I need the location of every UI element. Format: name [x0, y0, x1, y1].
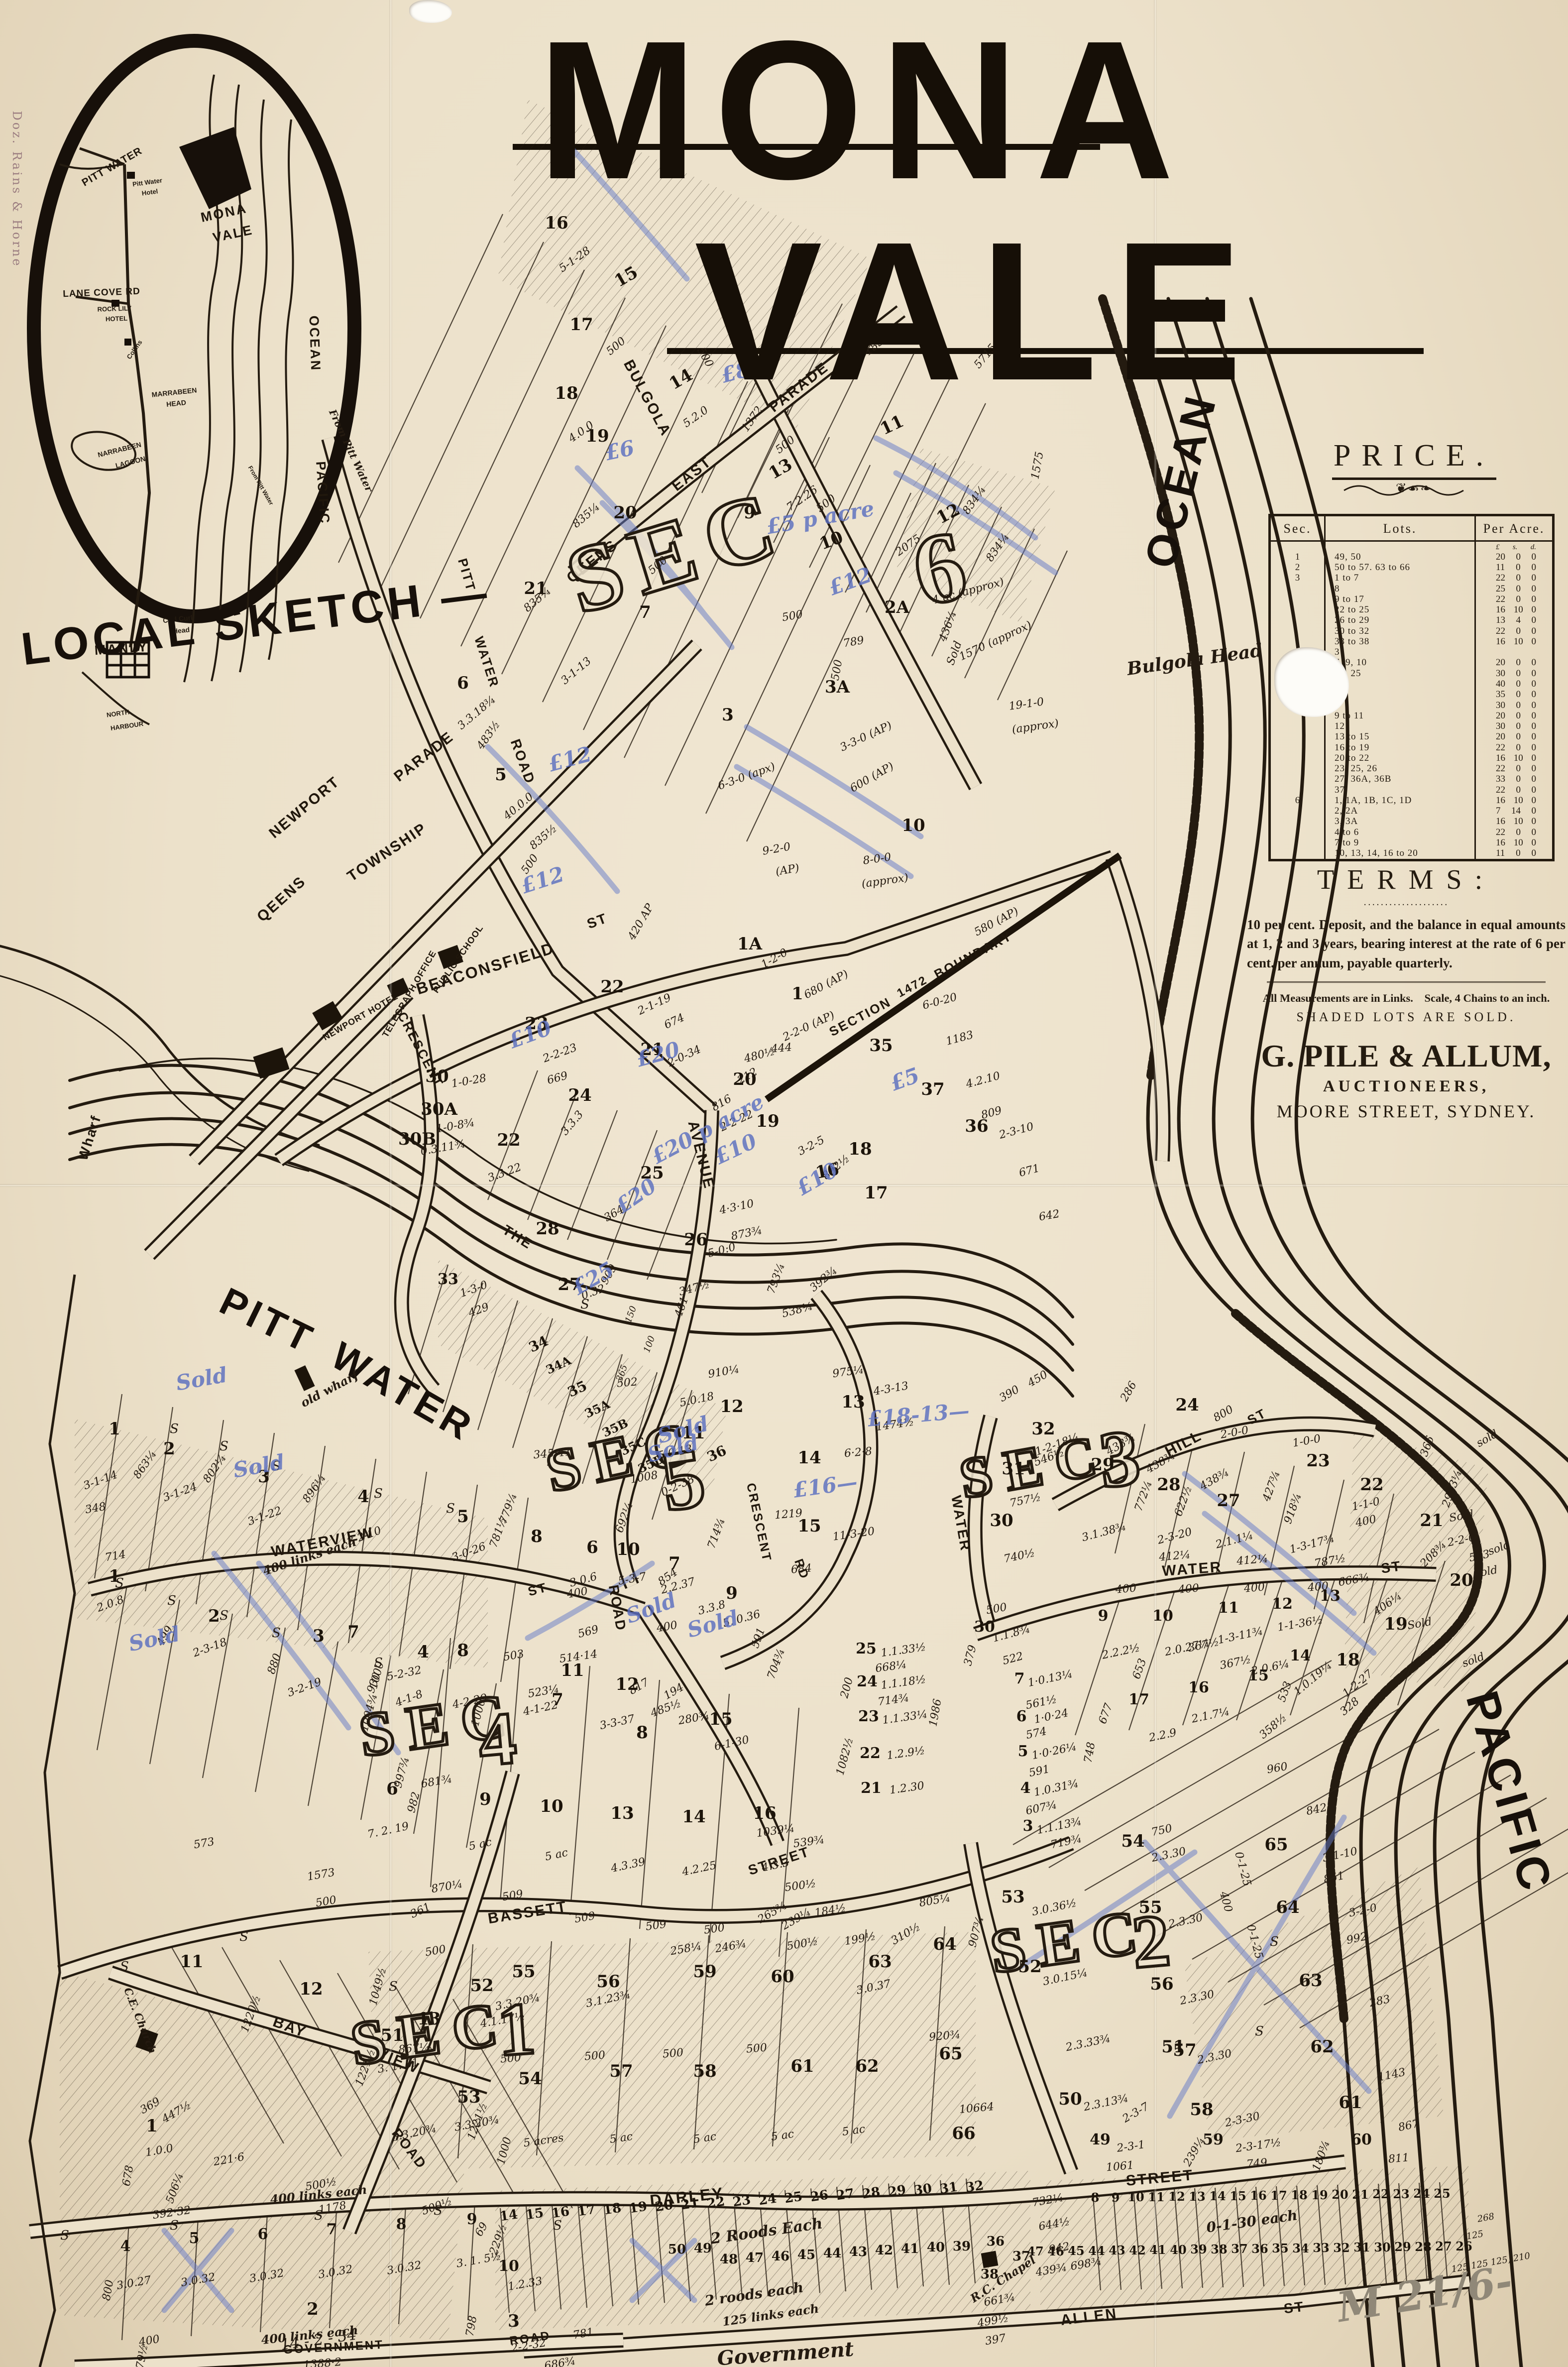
map-annotation: 5	[189, 2231, 200, 2246]
map-annotation: 9	[479, 1791, 491, 1808]
map-annotation: 60	[1351, 2132, 1372, 2147]
map-annotation: 920¾	[928, 2029, 961, 2043]
map-annotation: 22	[1360, 1476, 1383, 1493]
map-annotation: 26	[684, 1231, 707, 1248]
map-annotation: 24	[568, 1087, 591, 1104]
price-row: 2, 2A7140	[1270, 806, 1554, 816]
map-annotation: 7	[1014, 1671, 1025, 1686]
map-annotation: 17	[569, 316, 593, 333]
map-annotation: 58	[693, 2063, 716, 2080]
map-annotation: 500	[703, 1922, 726, 1936]
map-annotation: 54	[518, 2070, 542, 2087]
map-annotation: 17	[576, 2203, 596, 2219]
map-annotation: 38	[1211, 2244, 1227, 2255]
map-annotation: 28	[861, 2186, 881, 2201]
map-annotation: 7	[639, 604, 651, 621]
map-annotation: 19	[628, 2200, 648, 2216]
price-col-peracre: Per Acre.	[1475, 515, 1554, 541]
map-annotation: 29	[887, 2184, 906, 2199]
map-annotation: 23	[1393, 2188, 1409, 2200]
price-row: 33 to 3816100	[1270, 636, 1554, 647]
map-annotation: 28	[1415, 2241, 1431, 2253]
map-annotation: 35	[869, 1037, 893, 1054]
map-annotation: 32	[965, 2179, 984, 2195]
map-annotation: 22	[600, 978, 624, 995]
map-annotation: 2A	[885, 599, 909, 616]
map-annotation: S	[272, 1627, 281, 1640]
map-annotation: 9	[726, 1585, 738, 1602]
map-annotation: 5	[1018, 1744, 1028, 1759]
map-annotation: 18	[848, 1141, 872, 1158]
map-annotation: 21	[861, 1781, 882, 1796]
map-annotation: 6	[258, 2227, 268, 2242]
map-annotation: S	[170, 1422, 179, 1435]
map-annotation: 9	[1112, 2192, 1120, 2204]
price-row: 4 to 62200	[1270, 827, 1554, 837]
map-annotation: 62	[855, 2058, 879, 2075]
map-annotation: 6	[457, 675, 469, 692]
paper-tear	[409, 0, 452, 23]
price-row: 9 to 172200	[1270, 594, 1554, 604]
price-row: 30 to 322200	[1270, 626, 1554, 636]
map-annotation: 56	[596, 1973, 620, 1990]
map-annotation: 27	[835, 2187, 855, 2203]
map-annotation: 32	[1333, 2242, 1349, 2254]
map-annotation: 58	[1190, 2101, 1213, 2118]
map-annotation: 4	[120, 2239, 131, 2254]
map-annotation: 42	[875, 2244, 893, 2257]
terms-divider	[1267, 981, 1546, 983]
map-annotation: 43	[1109, 2245, 1125, 2256]
map-annotation: 400	[1307, 1581, 1329, 1594]
map-annotation: 20	[613, 504, 637, 521]
map-annotation: 61	[1339, 2094, 1362, 2111]
map-annotation: 64	[1276, 1899, 1299, 1916]
map-annotation: S	[434, 2204, 443, 2217]
map-annotation: 9	[744, 504, 756, 521]
map-annotation: 7	[347, 1624, 359, 1641]
price-row: 7 to 916100	[1270, 837, 1554, 848]
map-annotation: 24	[1175, 1397, 1199, 1414]
map-annotation: 24	[857, 1674, 878, 1689]
map-annotation: 4	[417, 1644, 429, 1660]
map-annotation: 35	[1272, 2243, 1288, 2254]
map-annotation: 36	[987, 2235, 1005, 2248]
price-row: 16 to 192200	[1270, 742, 1554, 753]
map-annotation: S	[374, 1487, 383, 1500]
map-annotation: 18	[1336, 1652, 1359, 1668]
map-annotation: 2	[163, 1440, 175, 1457]
map-annotation: 14	[499, 2208, 518, 2224]
map-annotation: 39	[1190, 2244, 1207, 2255]
map-annotation: 43	[849, 2246, 867, 2258]
poster-title-line1: MONA	[538, 21, 1191, 199]
auctioneer-address: MOORE STREET, SYDNEY.	[1247, 1101, 1566, 1122]
map-annotation: 13	[417, 2011, 441, 2027]
map-annotation: 684	[790, 1563, 812, 1576]
map-annotation: S	[1255, 2025, 1264, 2038]
map-annotation: 12	[1272, 1597, 1293, 1612]
map-annotation: 30	[913, 2182, 932, 2198]
price-currency-row: £s.d.	[1270, 541, 1554, 552]
map-annotation: 50	[1058, 2091, 1082, 2108]
map-annotation: 400	[1243, 1582, 1265, 1595]
map-annotation: S	[170, 2219, 179, 2232]
map-annotation: S	[167, 1594, 176, 1607]
map-annotation: 10	[1152, 1609, 1173, 1624]
map-annotation: 15	[709, 1711, 732, 1728]
map-annotation: 27	[1217, 1492, 1240, 1509]
map-annotation: 50	[668, 2243, 686, 2256]
map-annotation: 31	[1002, 1460, 1025, 1477]
map-annotation: 22	[706, 2195, 725, 2211]
map-annotation: 30	[990, 1512, 1013, 1529]
map-annotation: 52	[470, 1977, 493, 1994]
map-annotation: 33	[438, 1272, 458, 1287]
map-annotation: 509	[645, 1919, 668, 1933]
auction-poster: BULGOLAEASTPARADEQEENSPARADENEWPORTQEENS…	[0, 0, 1568, 2367]
poster-title-line2: VALE	[694, 223, 1259, 400]
map-annotation: 65	[939, 2045, 962, 2062]
map-annotation: S	[389, 1980, 398, 1993]
map-annotation: 31	[939, 2181, 958, 2196]
price-row: 13 to 152000	[1270, 731, 1554, 742]
map-annotation: 41	[1149, 2244, 1166, 2256]
map-annotation: S	[220, 1440, 228, 1453]
map-annotation: 33	[1313, 2242, 1329, 2254]
map-annotation: 64	[933, 1936, 956, 1953]
map-annotation: 9	[1098, 1609, 1109, 1624]
map-annotation: 11	[1218, 1601, 1239, 1616]
map-annotation: 36	[965, 1118, 988, 1135]
map-annotation: 63	[1299, 1972, 1322, 1989]
map-annotation: 16	[1250, 2190, 1266, 2202]
price-row: 23, 25, 262200	[1270, 763, 1554, 774]
map-annotation: 23	[858, 1709, 879, 1724]
map-annotation: 17	[864, 1184, 888, 1201]
map-annotation: S	[553, 2219, 562, 2232]
map-annotation: 749	[1246, 2157, 1268, 2170]
map-annotation: 1	[791, 985, 803, 1002]
street-label: OCEAN	[307, 315, 323, 371]
map-annotation: 38	[981, 2268, 999, 2281]
map-annotation: 1061	[1106, 2160, 1134, 2174]
price-row: 26 to 291340	[1270, 615, 1554, 625]
map-annotation: 20	[654, 2199, 673, 2214]
map-annotation: 13	[841, 1394, 865, 1411]
price-row: 31 to 72200	[1270, 573, 1554, 583]
map-annotation: S	[60, 2229, 69, 2242]
price-row: 123000	[1270, 721, 1554, 731]
map-annotation: 60	[771, 1968, 794, 1985]
map-annotation: 20	[1332, 2189, 1348, 2201]
map-annotation: 6	[586, 1539, 598, 1556]
sold-lot-hatching	[60, 100, 1488, 2340]
map-annotation: ROCK LILY	[97, 305, 131, 312]
map-annotation: 22	[860, 1746, 881, 1761]
terms-dots: ....................	[1247, 897, 1566, 908]
map-annotation: 37	[1231, 2243, 1247, 2255]
map-annotation: 12	[299, 1981, 323, 1998]
map-annotation: 55	[512, 1963, 535, 1980]
map-annotation: 39	[953, 2240, 971, 2253]
map-annotation: 13	[1189, 2191, 1205, 2203]
terms-heading: TERMS:	[1247, 864, 1566, 896]
price-col-lots: Lots.	[1325, 515, 1475, 541]
map-annotation: 18	[602, 2202, 622, 2217]
map-annotation: 40	[1170, 2244, 1186, 2256]
terms-links-note: All Measurements are in Links.	[1263, 992, 1413, 1004]
map-annotation: 4	[1020, 1781, 1031, 1796]
map-annotation: S	[120, 1960, 129, 1973]
map-annotation: 20	[733, 1071, 756, 1088]
map-annotation: 49	[1090, 2132, 1111, 2147]
map-annotation: 15	[1230, 2190, 1246, 2202]
map-annotation: 10664	[959, 2102, 995, 2116]
blue-price-annotation: £6	[603, 437, 636, 464]
map-annotation: 40	[927, 2241, 945, 2254]
map-annotation: 867¼	[398, 2042, 430, 2055]
map-annotation: 18	[1291, 2189, 1307, 2201]
terms-panel: TERMS: .................... 10 per cent.…	[1247, 864, 1566, 1122]
street-label: ST	[1380, 1559, 1402, 1576]
map-annotation: 20	[1450, 1572, 1473, 1589]
map-annotation: 14	[1290, 1649, 1311, 1663]
map-annotation: S	[446, 1502, 455, 1515]
map-annotation: 14	[797, 1449, 821, 1466]
price-row: 372200	[1270, 785, 1554, 795]
terms-shaded-note: SHADED LOTS ARE SOLD.	[1247, 1010, 1566, 1025]
map-annotation: 16	[753, 1805, 776, 1822]
map-annotation: 47	[746, 2251, 764, 2264]
map-annotation: 10	[901, 817, 925, 834]
map-annotation: 30A	[421, 1101, 457, 1118]
map-annotation: 37	[1012, 2250, 1030, 2263]
map-annotation: 46	[772, 2250, 789, 2263]
map-annotation: S	[1270, 1935, 1279, 1948]
map-annotation: 45	[797, 2249, 815, 2261]
price-row: 3, 3A16100	[1270, 816, 1554, 827]
map-annotation: 4	[357, 1488, 369, 1505]
map-annotation: 7	[669, 1555, 680, 1572]
auctioneer-role: AUCTIONEERS,	[1247, 1077, 1566, 1096]
map-annotation: 6·2·8	[844, 1446, 873, 1460]
map-annotation: 34	[1292, 2243, 1309, 2254]
map-annotation: 400	[1115, 1583, 1137, 1596]
map-annotation: 36	[1251, 2243, 1268, 2255]
map-annotation: 15	[797, 1518, 821, 1535]
map-annotation: 8	[396, 2217, 407, 2232]
map-annotation: 3	[1023, 1819, 1033, 1834]
price-row: 27, 36A, 36B3300	[1270, 774, 1554, 784]
map-annotation: 27	[1435, 2241, 1452, 2252]
map-annotation: 41	[901, 2243, 919, 2255]
map-annotation: 23	[1306, 1452, 1330, 1469]
map-annotation: S	[220, 1609, 228, 1622]
map-annotation: 57	[609, 2063, 633, 2080]
map-annotation: 1	[146, 2118, 158, 2134]
map-annotation: 63	[868, 1953, 892, 1970]
price-row: 82500	[1270, 584, 1554, 594]
map-annotation: 44	[1088, 2245, 1105, 2257]
printer-stamp: Doz. Rains & Horne	[11, 111, 23, 267]
map-annotation: 21	[1352, 2189, 1368, 2201]
map-annotation: HOTEL	[106, 315, 127, 323]
map-annotation: 25	[856, 1642, 877, 1657]
map-annotation: 26	[809, 2189, 829, 2204]
map-annotation: 2	[208, 1608, 220, 1625]
map-annotation: 3A	[825, 679, 850, 696]
map-annotation: 59	[693, 1963, 716, 1980]
map-annotation: 14	[682, 1808, 705, 1825]
map-annotation: 11	[180, 1953, 203, 1970]
map-annotation: 8	[457, 1642, 469, 1659]
map-annotation: 17	[1270, 2190, 1287, 2202]
map-annotation: 30	[1374, 2242, 1390, 2253]
map-annotation: 66	[952, 2125, 975, 2142]
map-annotation: 400	[1178, 1583, 1200, 1596]
map-annotation: 12	[720, 1398, 743, 1415]
map-annotation: 37	[921, 1081, 944, 1098]
map-annotation: 25	[1434, 2188, 1450, 2200]
map-annotation: S	[580, 1298, 589, 1311]
map-annotation: 8	[1091, 2192, 1100, 2204]
map-annotation: 500	[662, 2047, 684, 2060]
price-title: PRICE.	[1332, 438, 1496, 480]
map-annotation: 3	[313, 1628, 325, 1645]
map-annotation: 1388·2	[303, 2357, 342, 2367]
price-col-sec: Sec.	[1270, 515, 1325, 541]
map-annotation: S	[314, 2209, 323, 2222]
map-annotation: 10	[1127, 2191, 1144, 2203]
map-annotation: 26	[1456, 2241, 1472, 2252]
map-annotation: 49	[694, 2242, 712, 2255]
map-annotation: 51	[380, 2027, 404, 2044]
price-row: 250 to 57. 63 to 661100	[1270, 562, 1554, 573]
map-annotation: 61	[790, 2058, 814, 2075]
map-annotation: 32	[1031, 1420, 1055, 1437]
price-row: 149, 502000	[1270, 552, 1554, 562]
price-row: 22 to 2516100	[1270, 604, 1554, 615]
map-annotation: 31	[1353, 2242, 1370, 2253]
map-annotation: 1	[109, 1420, 120, 1437]
map-annotation: 21	[680, 2197, 699, 2212]
map-annotation: 8	[531, 1528, 543, 1545]
map-annotation: 23	[732, 2194, 751, 2209]
map-annotation: 30	[425, 1068, 448, 1085]
map-annotation: 500	[500, 2052, 522, 2065]
map-annotation: 24	[1413, 2188, 1430, 2200]
map-annotation: 28	[1157, 1476, 1180, 1493]
map-annotation: 42	[1129, 2245, 1145, 2256]
map-annotation: 55	[1138, 1899, 1162, 1916]
price-squiggle: ❦☙❧	[1268, 481, 1560, 496]
map-annotation: 65	[1264, 1836, 1288, 1853]
map-annotation: 48	[720, 2253, 738, 2266]
map-annotation: 8	[636, 1724, 648, 1741]
map-annotation: 5	[495, 766, 507, 783]
map-annotation: 6	[1016, 1709, 1027, 1724]
map-annotation: 5	[457, 1508, 469, 1525]
map-annotation: 25	[784, 2190, 803, 2206]
map-annotation: 3	[508, 2313, 520, 2330]
map-annotation: 10	[616, 1541, 640, 1558]
map-annotation: 57	[1173, 2042, 1196, 2059]
map-annotation: 19	[1311, 2189, 1328, 2201]
map-annotation: 28	[536, 1220, 559, 1237]
map-annotation: 9	[467, 2212, 477, 2227]
map-annotation: 811	[1388, 2152, 1410, 2165]
map-annotation: 18	[555, 385, 578, 402]
map-annotation: 11	[560, 1662, 584, 1679]
map-annotation: 62	[1310, 2038, 1334, 2055]
terms-body: 10 per cent. Deposit, and the balance in…	[1247, 915, 1566, 972]
price-row: 10, 13, 14, 16 to 201100	[1270, 848, 1554, 860]
terms-scale-note: Scale, 4 Chains to an inch.	[1424, 992, 1550, 1004]
map-annotation: 10	[540, 1798, 563, 1815]
map-annotation: S	[239, 1930, 248, 1943]
map-annotation: 22	[497, 1132, 520, 1149]
map-annotation: 13	[610, 1805, 634, 1822]
map-annotation: 412¼	[1158, 1549, 1191, 1563]
map-annotation: 3	[722, 707, 734, 723]
map-annotation: S	[374, 1657, 383, 1669]
terms-measurements: All Measurements are in Links. Scale, 4 …	[1247, 992, 1566, 1005]
map-annotation: S	[115, 1577, 124, 1590]
map-annotation: 44	[823, 2247, 841, 2260]
map-annotation: 7	[327, 2222, 337, 2237]
map-annotation: 16	[1188, 1680, 1209, 1695]
map-annotation: 22	[1372, 2188, 1389, 2200]
map-annotation: 412¼	[1236, 1553, 1268, 1567]
map-annotation: 500	[746, 2042, 768, 2055]
map-annotation: 14	[1209, 2190, 1226, 2202]
map-annotation: HEAD	[166, 399, 187, 408]
map-annotation: 12	[615, 1676, 639, 1693]
price-row: 20 to 2216100	[1270, 753, 1554, 763]
fold-crease	[0, 1184, 1568, 1187]
map-annotation: 17	[1128, 1692, 1149, 1707]
map-annotation: 54	[1121, 1833, 1144, 1850]
street-label: ST	[1283, 2300, 1306, 2316]
map-annotation: 1A	[737, 936, 762, 952]
map-annotation: 29	[1091, 1456, 1114, 1473]
map-annotation: 15	[525, 2207, 544, 2222]
map-annotation: 500	[584, 2050, 606, 2063]
auctioneer-name: G. PILE & ALLUM,	[1247, 1038, 1566, 1074]
map-annotation: 56	[1150, 1976, 1173, 1993]
map-annotation: 29	[1394, 2241, 1411, 2253]
map-annotation: 2	[307, 2301, 319, 2318]
map-annotation: 1219	[774, 1508, 803, 1522]
map-annotation: 52	[1018, 1958, 1041, 1975]
price-row: 61, 1A, 1B, 1C, 1D16100	[1270, 795, 1554, 806]
map-annotation: 21	[1420, 1512, 1443, 1529]
map-annotation: 12	[1168, 2191, 1185, 2203]
map-annotation: 19	[1384, 1616, 1407, 1633]
map-annotation: 11	[1148, 2191, 1164, 2203]
map-annotation: 24	[758, 2192, 777, 2208]
map-annotation: 53	[1001, 1889, 1024, 1905]
street-label: LANE COVE RD	[63, 287, 140, 299]
inset-caption-dash: —	[438, 567, 493, 623]
